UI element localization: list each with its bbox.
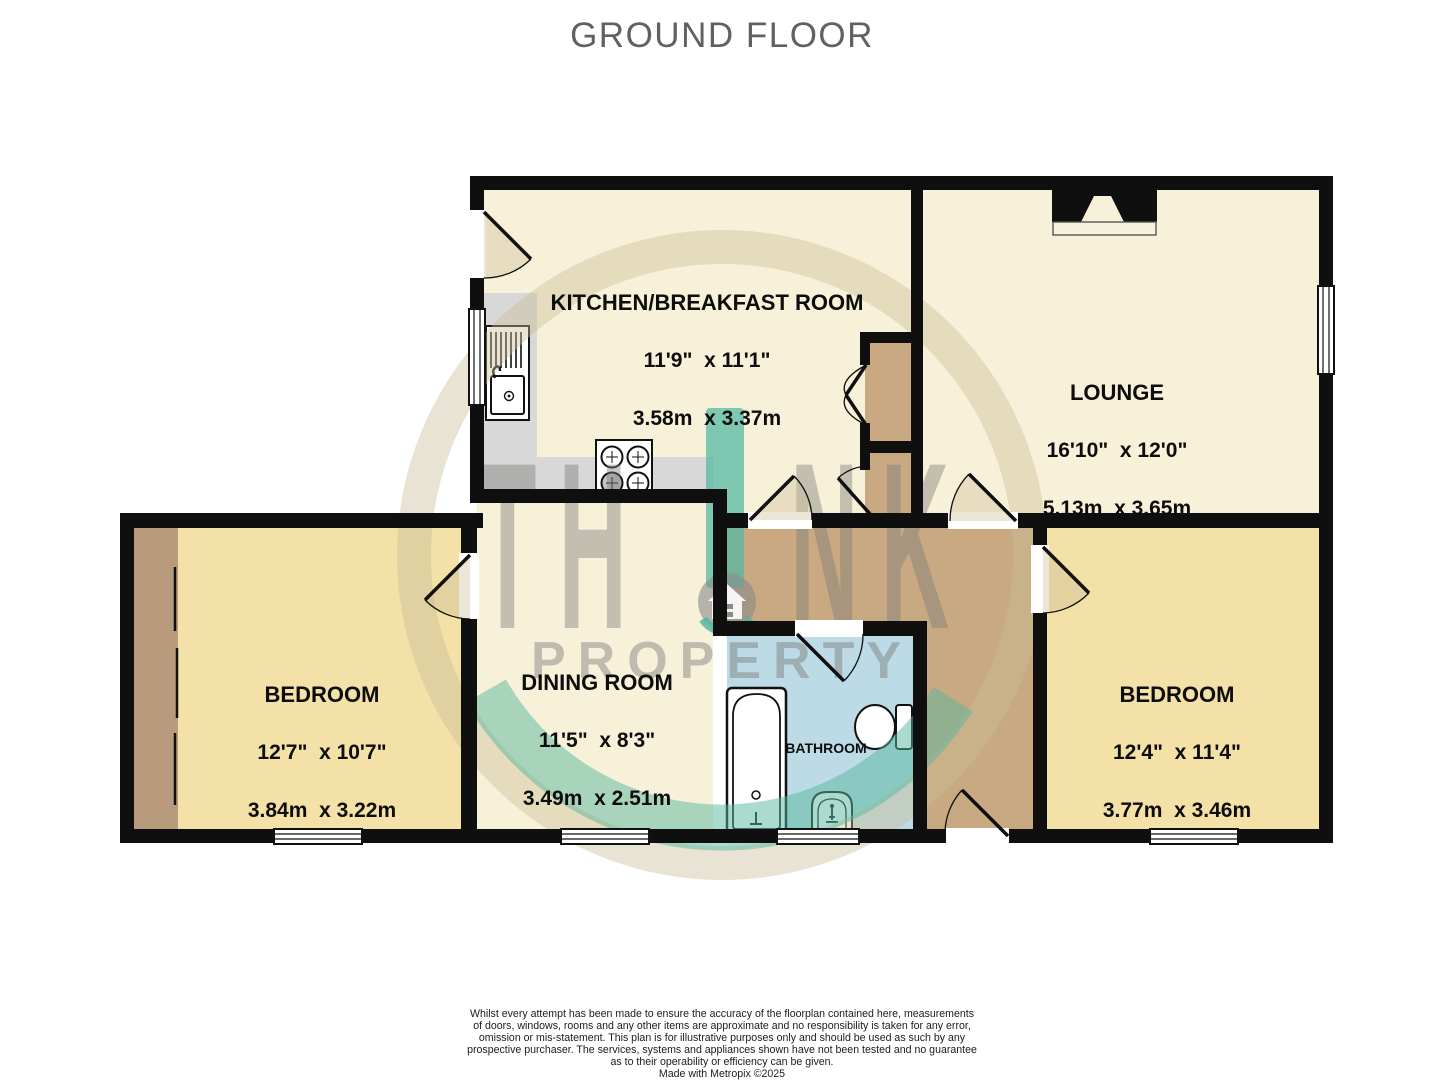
- room-size-metric: 3.58m x 3.37m: [551, 408, 864, 430]
- room-label-bathroom: BATHROOM: [785, 740, 866, 756]
- room-label-bedroom-left: BEDROOM 12'7" x 10'7" 3.84m x 3.22m: [248, 648, 396, 857]
- room-size-imperial: 16'10" x 12'0": [1043, 440, 1191, 462]
- disclaimer-text: Whilst every attempt has been made to en…: [217, 1008, 1227, 1080]
- room-name: BEDROOM: [1103, 684, 1251, 706]
- room-label-dining: DINING ROOM 11'5" x 8'3" 3.49m x 2.51m: [521, 636, 673, 845]
- room-name: DINING ROOM: [521, 672, 673, 694]
- room-size-imperial: 12'4" x 11'4": [1103, 742, 1251, 764]
- disclaimer-line: Whilst every attempt has been made to en…: [217, 1008, 1227, 1020]
- page-title: GROUND FLOOR: [570, 16, 874, 56]
- disclaimer-line: prospective purchaser. The services, sys…: [217, 1044, 1227, 1056]
- disclaimer-line: omission or mis-statement. This plan is …: [217, 1032, 1227, 1044]
- room-label-lounge: LOUNGE 16'10" x 12'0" 5.13m x 3.65m: [1043, 346, 1191, 555]
- disclaimer-line: of doors, windows, rooms and any other i…: [217, 1020, 1227, 1032]
- floorplan-page: TH NK PROPERTY: [0, 0, 1451, 1080]
- disclaimer-line: as to their operability or efficiency ca…: [217, 1056, 1227, 1068]
- room-size-metric: 3.49m x 2.51m: [521, 788, 673, 810]
- room-label-bedroom-right: BEDROOM 12'4" x 11'4" 3.77m x 3.46m: [1103, 648, 1251, 857]
- room-size-metric: 3.84m x 3.22m: [248, 800, 396, 822]
- lounge-window: [1318, 286, 1334, 374]
- metropix-credit: Made with Metropix ©2025: [217, 1068, 1227, 1080]
- built-in-wardrobe: [134, 527, 178, 830]
- room-size-imperial: 11'9" x 11'1": [551, 350, 864, 372]
- room-size-imperial: 12'7" x 10'7": [248, 742, 396, 764]
- room-name: BEDROOM: [248, 684, 396, 706]
- bathroom-window: [777, 829, 859, 844]
- room-size-metric: 5.13m x 3.65m: [1043, 498, 1191, 520]
- room-size-metric: 3.77m x 3.46m: [1103, 800, 1251, 822]
- floorplan-drawing: TH NK PROPERTY: [0, 0, 1451, 1080]
- room-name: LOUNGE: [1043, 382, 1191, 404]
- room-size-imperial: 11'5" x 8'3": [521, 730, 673, 752]
- kitchen-window: [469, 309, 485, 405]
- room-label-kitchen: KITCHEN/BREAKFAST ROOM 11'9" x 11'1" 3.5…: [551, 256, 864, 465]
- room-name: KITCHEN/BREAKFAST ROOM: [551, 292, 864, 314]
